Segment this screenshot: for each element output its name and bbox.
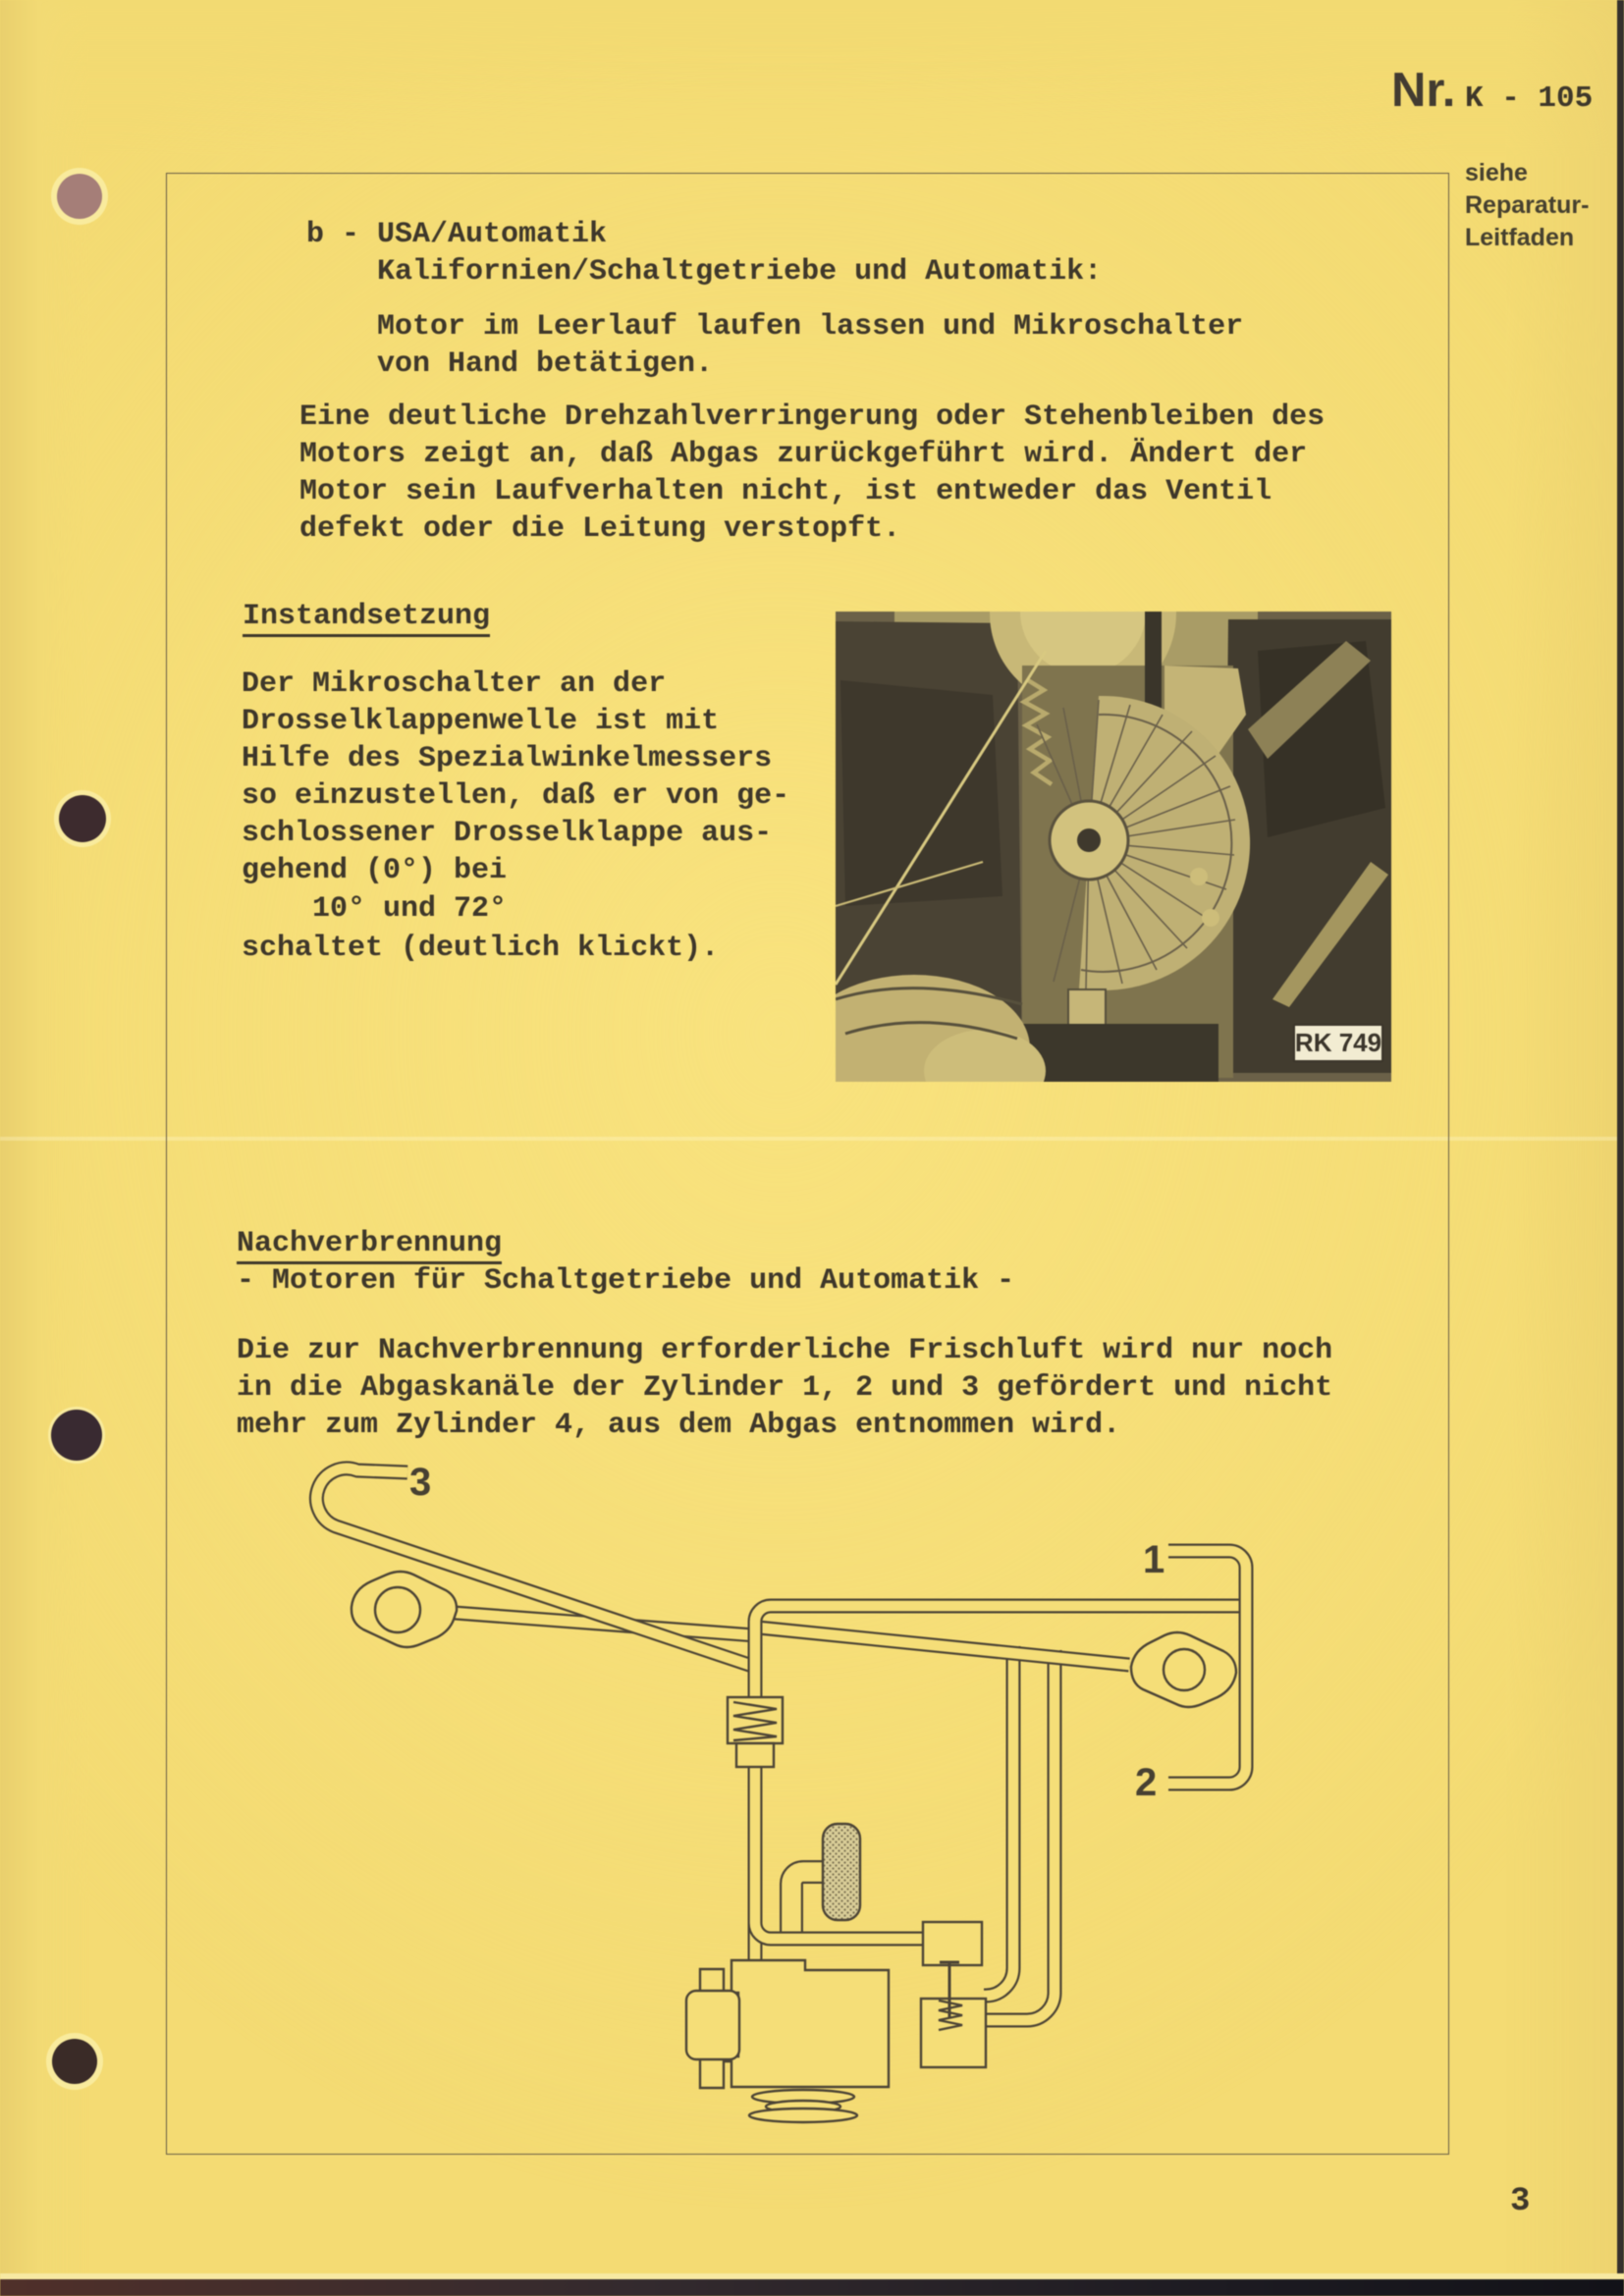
svg-text:1: 1 <box>1143 1538 1164 1581</box>
svg-text:2: 2 <box>1135 1761 1157 1804</box>
svg-text:3: 3 <box>409 1461 431 1504</box>
svg-text:RK 749: RK 749 <box>1295 1028 1381 1057</box>
